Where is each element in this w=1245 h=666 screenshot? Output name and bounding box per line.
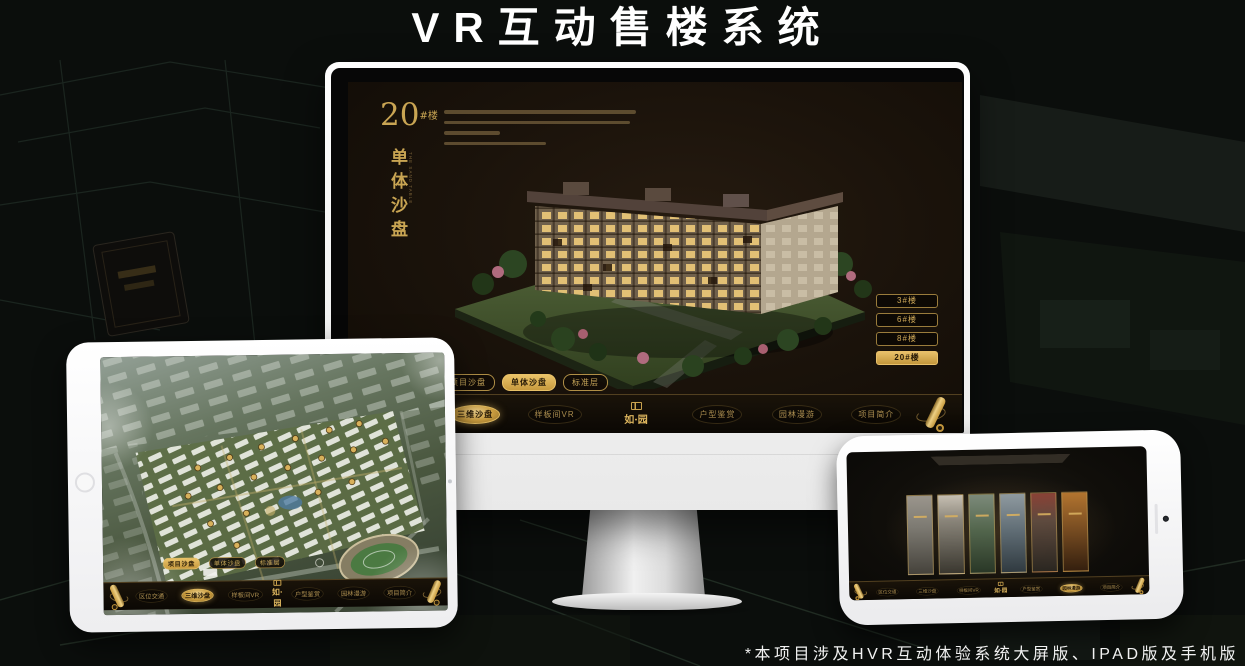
monitor-stand-base xyxy=(552,593,742,610)
footnote-text: *本项目涉及HVR互动体验系统大屏版、IPAD版及手机版 xyxy=(745,640,1239,664)
seal-icon xyxy=(273,580,281,586)
nav-item[interactable]: 区位交通 xyxy=(867,581,907,600)
block-subtitle: 单体沙盘 xyxy=(385,148,410,244)
nav-item[interactable]: 样板间VR xyxy=(220,585,270,605)
building-render xyxy=(443,144,873,389)
building-selector: 3#楼 6#楼 8#楼 20#楼 xyxy=(876,294,938,365)
seal-icon xyxy=(631,402,642,410)
nav-item[interactable]: 样板间VR xyxy=(947,579,990,598)
camera-icon xyxy=(448,479,452,483)
view-tab[interactable]: 标准层 xyxy=(255,556,285,568)
brand-logo: 如·园 xyxy=(992,582,1009,595)
nav-item[interactable]: 区位交通 xyxy=(128,586,174,606)
nav-item[interactable]: 项目简介 xyxy=(1091,576,1131,595)
scene-gallery xyxy=(906,491,1089,575)
scene-panel[interactable] xyxy=(1061,491,1089,572)
phone-app-screen: 区位交通 三维沙盘 样板间VR 如·园 户型鉴赏 园林漫游 项目简介 xyxy=(846,446,1149,600)
compass-icon xyxy=(315,558,324,567)
nav-item[interactable]: 园林漫游 xyxy=(757,404,836,424)
block-headline: 20#楼 xyxy=(380,98,438,132)
scroll-icon[interactable] xyxy=(916,396,954,432)
block-unit: #楼 xyxy=(419,111,437,122)
scene-panel[interactable] xyxy=(999,493,1027,574)
scene-panel[interactable] xyxy=(906,495,934,576)
phone-device: 区位交通 三维沙盘 样板间VR 如·园 户型鉴赏 园林漫游 项目简介 xyxy=(836,429,1184,625)
building-button-active[interactable]: 20#楼 xyxy=(876,351,938,365)
scene-panel[interactable] xyxy=(1030,492,1058,573)
camera-icon xyxy=(1163,516,1169,522)
building-button[interactable]: 8#楼 xyxy=(876,332,938,346)
brand-logo: 如·园 xyxy=(270,580,285,609)
block-subtitle-english: THE SAND TABLE xyxy=(408,152,413,204)
nav-item[interactable]: 三维沙盘 xyxy=(907,580,947,599)
view-tab[interactable]: 标准层 xyxy=(563,374,608,391)
nav-item-active[interactable]: 三维沙盘 xyxy=(174,586,220,606)
scroll-icon[interactable] xyxy=(106,583,128,609)
aerial-map xyxy=(100,352,448,615)
map-scale-box xyxy=(203,569,217,576)
speaker-icon xyxy=(1155,504,1159,534)
scene-panel[interactable] xyxy=(968,493,996,574)
nav-item[interactable]: 项目简介 xyxy=(837,404,916,424)
seal-icon xyxy=(998,582,1004,586)
courtyard-roof-silhouette xyxy=(930,454,1070,466)
view-tabs: 项目沙盘 单体沙盘 标准层 xyxy=(441,374,608,391)
ipad-view-tabs: 项目沙盘 单体沙盘 标准层 xyxy=(163,554,287,573)
nav-item[interactable]: 园林漫游 xyxy=(330,583,376,603)
nav-item[interactable]: 户型鉴赏 xyxy=(1011,578,1051,597)
building-button[interactable]: 3#楼 xyxy=(876,294,938,308)
nav-item-active[interactable]: 园林漫游 xyxy=(1051,577,1091,596)
home-button-icon[interactable] xyxy=(75,472,95,492)
block-number: 20 xyxy=(380,97,419,133)
page-title: VR互动售楼系统 xyxy=(0,0,1245,56)
view-tab-active[interactable]: 项目沙盘 xyxy=(163,558,200,570)
view-tab-active[interactable]: 单体沙盘 xyxy=(502,374,556,391)
scroll-icon[interactable] xyxy=(1131,577,1147,594)
promo-poster: VR互动售楼系统 20#楼 单体沙盘 THE SAND TABLE xyxy=(0,0,1245,666)
brand-logo: 如·园 xyxy=(594,402,677,426)
building-button[interactable]: 6#楼 xyxy=(876,313,938,327)
nav-item[interactable]: 样板间VR xyxy=(515,404,594,424)
scroll-icon[interactable] xyxy=(851,583,867,600)
monitor-stand-neck xyxy=(582,505,705,597)
scene-panel[interactable] xyxy=(937,494,965,575)
nav-item[interactable]: 户型鉴赏 xyxy=(678,404,757,424)
scroll-icon[interactable] xyxy=(422,579,444,605)
nav-item[interactable]: 项目简介 xyxy=(376,583,422,603)
view-tab[interactable]: 单体沙盘 xyxy=(209,557,246,569)
ipad-app-screen: 项目沙盘 单体沙盘 标准层 区位交通 三维沙盘 样板间VR 如·园 户型鉴赏 园… xyxy=(100,352,448,615)
ipad-device: 项目沙盘 单体沙盘 标准层 区位交通 三维沙盘 样板间VR 如·园 户型鉴赏 园… xyxy=(66,337,458,632)
nav-item[interactable]: 户型鉴赏 xyxy=(284,584,330,604)
ipad-navbar: 区位交通 三维沙盘 样板间VR 如·园 户型鉴赏 园林漫游 项目简介 xyxy=(103,577,447,610)
